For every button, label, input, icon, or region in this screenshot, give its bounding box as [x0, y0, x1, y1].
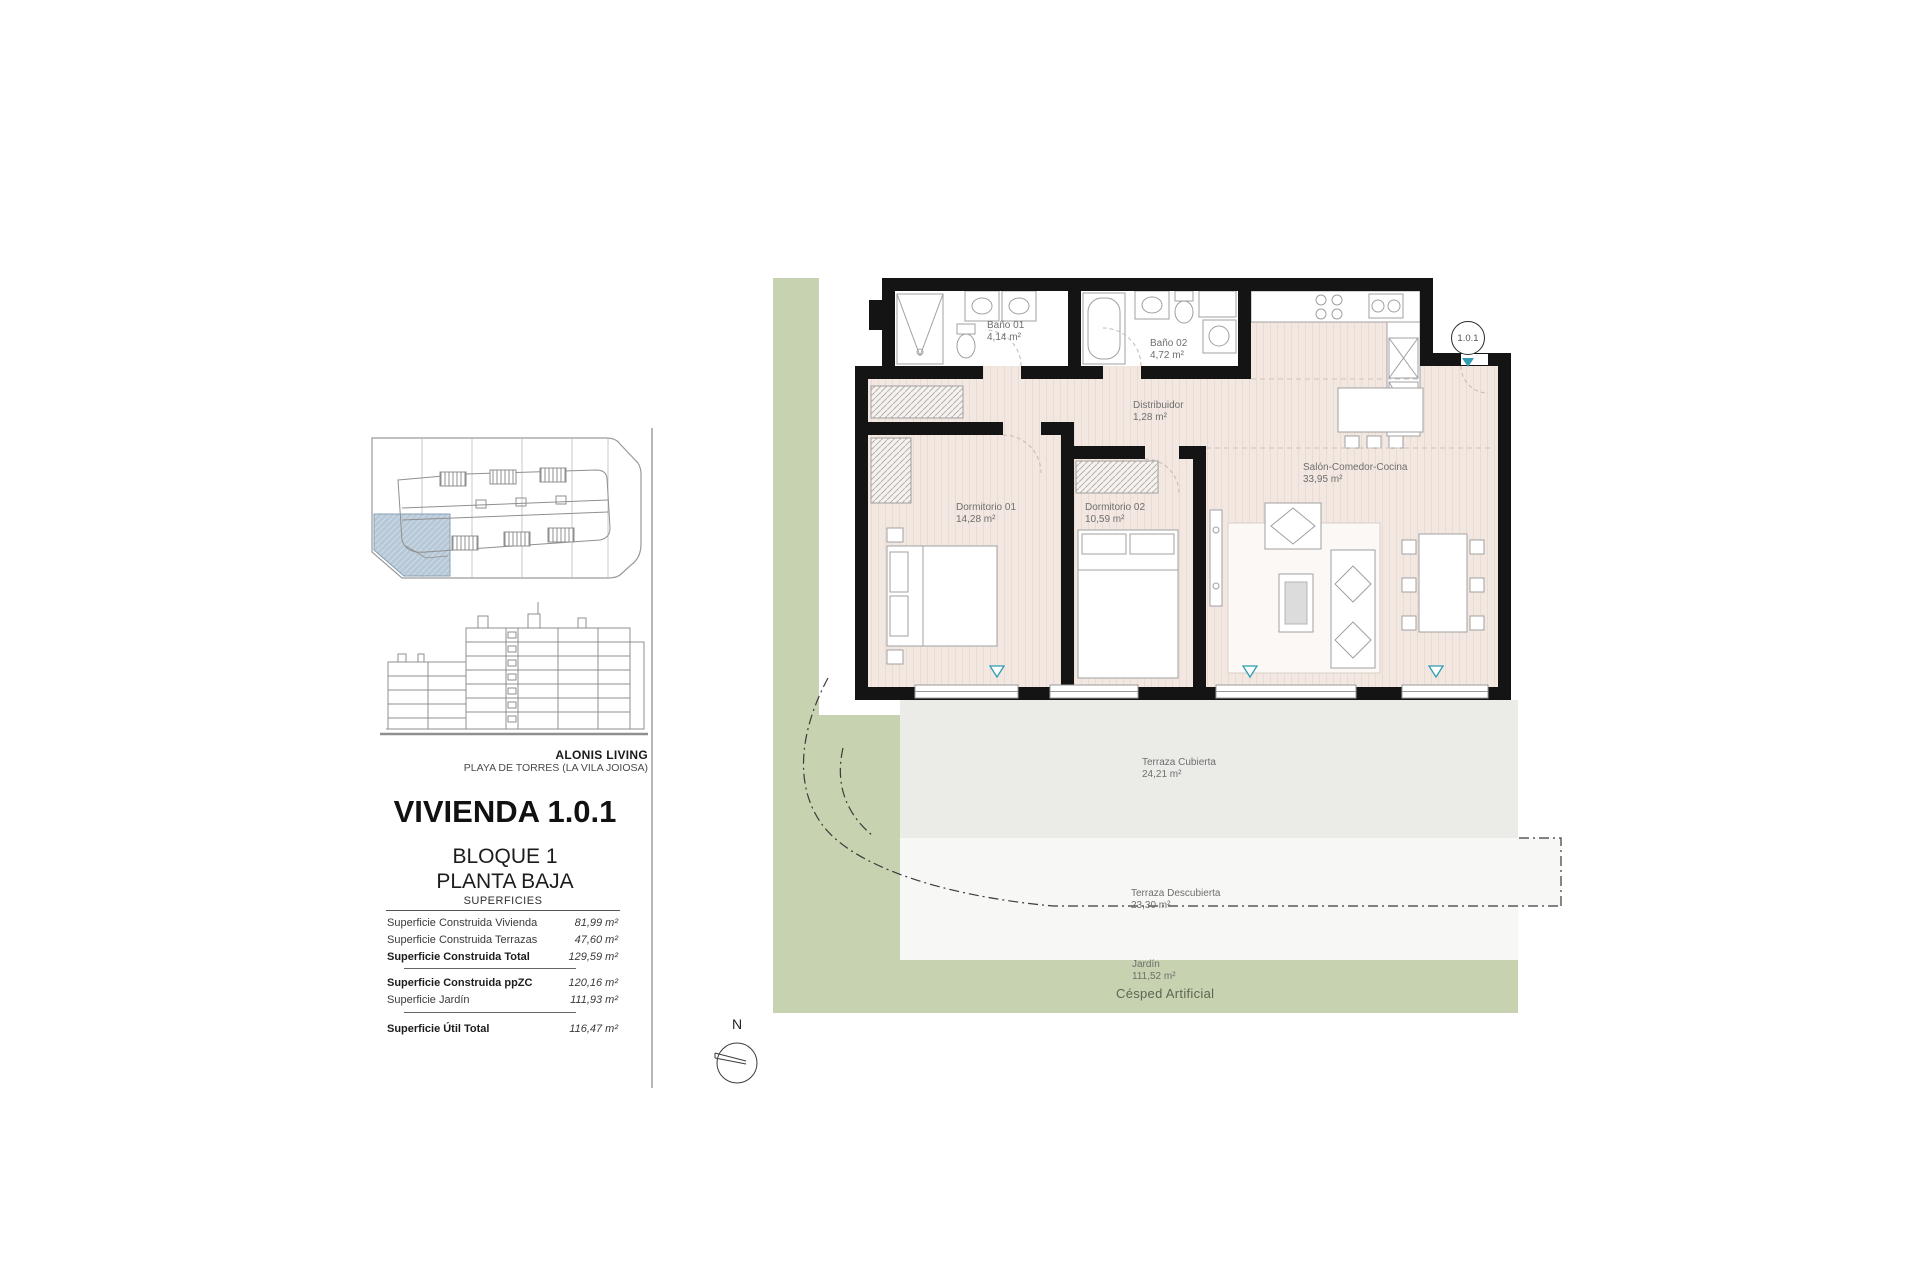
- bedroom-01-furniture: [887, 528, 997, 664]
- row-label: Superficie Construida Terrazas: [387, 934, 537, 946]
- room-area: 4,14 m²: [987, 332, 1024, 344]
- room-area: 14,28 m²: [956, 514, 1016, 526]
- panel-divider: [651, 428, 653, 1088]
- north-arrow-icon: [706, 1016, 770, 1094]
- room-name: Salón-Comedor-Cocina: [1303, 462, 1408, 474]
- open-terrace-extension: [1518, 838, 1561, 906]
- room-label-dormitorio-02: Dormitorio 02 10,59 m²: [1085, 502, 1145, 525]
- table-row: Superficie Construida Total 129,59 m²: [387, 950, 618, 964]
- table-row: Superficie Construida Terrazas 47,60 m²: [387, 933, 618, 947]
- row-label: Superficie Construida Total: [387, 951, 530, 963]
- floor-plan: Baño 01 4,14 m² Baño 02 4,72 m² Distribu…: [773, 278, 1573, 1013]
- superficies-header: SUPERFICIES: [386, 895, 620, 907]
- superficies-header-rule: [386, 910, 620, 911]
- room-name: Jardín: [1132, 959, 1176, 971]
- highlighted-unit: [374, 514, 450, 576]
- floor-label: PLANTA BAJA: [370, 870, 640, 894]
- room-label-terraza-cubierta: Terraza Cubierta 24,21 m²: [1142, 757, 1216, 780]
- floorplan-sheet: ALONIS LIVING PLAYA DE TORRES (LA VILA J…: [0, 0, 1920, 1280]
- row-label: Superficie Construida ppZC: [387, 977, 532, 989]
- room-label-salon: Salón-Comedor-Cocina 33,95 m²: [1303, 462, 1408, 485]
- room-area: 23,30 m²: [1131, 900, 1220, 912]
- row-value: 129,59 m²: [568, 951, 618, 963]
- room-label-dormitorio-01: Dormitorio 01 14,28 m²: [956, 502, 1016, 525]
- table-row: Superficie Construida Vivienda 81,99 m²: [387, 916, 618, 930]
- room-label-bano-02: Baño 02 4,72 m²: [1150, 338, 1187, 361]
- table-row: Superficie Construida ppZC 120,16 m²: [387, 976, 618, 990]
- bedroom-02-furniture: [1078, 530, 1178, 678]
- room-name: Dormitorio 01: [956, 502, 1016, 514]
- row-label: Superficie Útil Total: [387, 1023, 489, 1035]
- unit-entrance-marker: 1.0.1: [1451, 321, 1485, 355]
- site-plan-drawing: [356, 428, 648, 596]
- room-area: 111,52 m²: [1132, 971, 1176, 983]
- row-value: 116,47 m²: [569, 1023, 618, 1035]
- brand-location: PLAYA DE TORRES (LA VILA JOIOSA): [388, 762, 648, 774]
- room-area: 1,28 m²: [1133, 412, 1184, 424]
- room-name: Baño 02: [1150, 338, 1187, 350]
- building-elevation-drawing: [378, 592, 650, 742]
- room-name: Distribuidor: [1133, 400, 1184, 412]
- row-value: 111,93 m²: [570, 994, 618, 1006]
- table-divider: [404, 968, 576, 969]
- brand-name: ALONIS LIVING: [388, 748, 648, 762]
- unit-marker-label: 1.0.1: [1457, 333, 1478, 344]
- room-label-terraza-descubierta: Terraza Descubierta 23,30 m²: [1131, 888, 1220, 911]
- row-label: Superficie Jardín: [387, 994, 470, 1006]
- room-area: 33,95 m²: [1303, 474, 1408, 486]
- room-area: 10,59 m²: [1085, 514, 1145, 526]
- room-label-distribuidor: Distribuidor 1,28 m²: [1133, 400, 1184, 423]
- room-name: Dormitorio 02: [1085, 502, 1145, 514]
- room-name: Terraza Descubierta: [1131, 888, 1220, 900]
- room-label-bano-01: Baño 01 4,14 m²: [987, 320, 1024, 343]
- ground-material-label: Césped Artificial: [1116, 986, 1214, 1001]
- table-row: Superficie Útil Total 116,47 m²: [387, 1022, 618, 1036]
- table-row: Superficie Jardín 111,93 m²: [387, 993, 618, 1007]
- room-label-jardin: Jardín 111,52 m²: [1132, 959, 1176, 982]
- room-name: Terraza Cubierta: [1142, 757, 1216, 769]
- row-value: 47,60 m²: [575, 934, 618, 946]
- row-value: 81,99 m²: [575, 917, 618, 929]
- block-label: BLOQUE 1: [370, 845, 640, 869]
- room-area: 4,72 m²: [1150, 350, 1187, 362]
- row-value: 120,16 m²: [568, 977, 618, 989]
- room-name: Baño 01: [987, 320, 1024, 332]
- room-area: 24,21 m²: [1142, 769, 1216, 781]
- table-divider: [404, 1012, 576, 1013]
- unit-title: VIVIENDA 1.0.1: [370, 794, 640, 830]
- row-label: Superficie Construida Vivienda: [387, 917, 537, 929]
